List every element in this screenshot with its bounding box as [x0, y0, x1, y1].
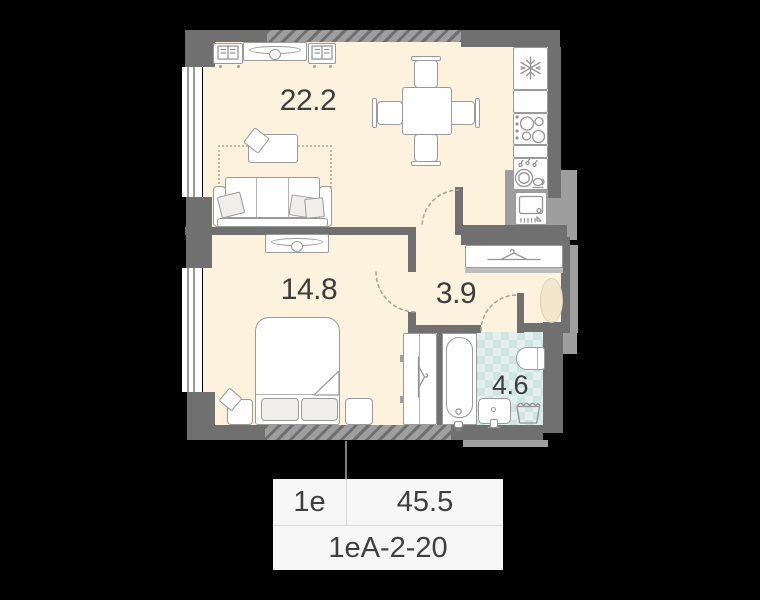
furniture-foot: [237, 65, 240, 68]
bookshelf-unit: [213, 43, 243, 64]
dining-chair: [414, 134, 438, 162]
room-area-bedroom: 14.8: [269, 273, 349, 307]
bathtub-inner: [446, 337, 473, 418]
bookshelf-unit: [308, 43, 336, 64]
closet-door-line: [419, 334, 420, 424]
wall-segment: [463, 440, 548, 447]
wall-bottom: [215, 425, 265, 440]
tv-stand-bedroom: [291, 241, 303, 252]
tv-stand-living: [269, 49, 281, 60]
room-area-hallway: 3.9: [420, 277, 492, 311]
nightstand: [345, 398, 373, 425]
furniture-foot: [313, 65, 316, 68]
washbasin-pedestal: [490, 419, 498, 428]
hallway-wardrobe: [465, 245, 563, 268]
bed-pillow: [261, 398, 299, 421]
dining-chair-back: [411, 161, 441, 166]
closet-hinge: [400, 396, 404, 403]
unit-info-card[interactable]: 1е 45.5 1еА-2-20: [273, 479, 503, 570]
hallway-oval-rug: [540, 278, 563, 323]
furniture-foot: [219, 65, 222, 68]
unit-type-cell: 1е: [273, 479, 347, 525]
dining-chair: [414, 60, 438, 88]
oven: [515, 192, 547, 225]
wall-bottom-hatched: [265, 425, 451, 440]
callout-connector-line: [345, 441, 347, 479]
unit-code-cell: 1еА-2-20: [273, 525, 503, 570]
stove: [513, 113, 548, 145]
wardrobe-front-strip: [465, 268, 563, 273]
unit-area-cell: 45.5: [347, 479, 503, 525]
wall-segment: [570, 245, 578, 333]
toilet: [516, 347, 545, 370]
kitchen-counter: [513, 145, 548, 158]
sofa-pillow: [304, 197, 325, 219]
wall-corner-bottom-left: [187, 392, 215, 440]
window-living-room: [182, 67, 202, 197]
kitchen-sink: [513, 158, 548, 190]
unit-card-top-row: 1е 45.5: [273, 479, 503, 525]
window-bedroom: [182, 268, 202, 392]
wall-top-right: [461, 30, 560, 47]
wall-right-bathroom: [543, 322, 563, 433]
dining-table: [402, 87, 452, 135]
toilet-tank-line: [537, 348, 538, 369]
wall-wardrobe-niche: [461, 225, 567, 245]
bed-sheet-line: [256, 394, 339, 395]
sofa-backrest: [217, 218, 328, 227]
wall-bedroom-hall-upper: [408, 227, 416, 272]
floorplan-canvas: 22.2 14.8 3.9 4.6 1е 45.5 1еА-2-20: [0, 0, 760, 600]
fridge: [513, 47, 548, 90]
kitchen-counter: [513, 90, 548, 113]
wall-bathroom-top: [410, 325, 481, 333]
sofa-seat-divider: [256, 178, 257, 217]
dining-chair-back: [475, 98, 480, 128]
wall-top: [185, 30, 267, 42]
wall-top-hatched: [267, 30, 461, 42]
dining-chair: [377, 101, 403, 125]
room-area-living: 22.2: [268, 84, 348, 118]
closet-hinge: [400, 355, 404, 362]
dining-chair: [449, 101, 475, 125]
washbasin-drain: [491, 407, 496, 412]
bed-pillow: [301, 398, 338, 421]
furniture-foot: [329, 65, 332, 68]
wall-right-kitchen: [548, 47, 561, 198]
room-area-bathroom: 4.6: [474, 370, 546, 401]
